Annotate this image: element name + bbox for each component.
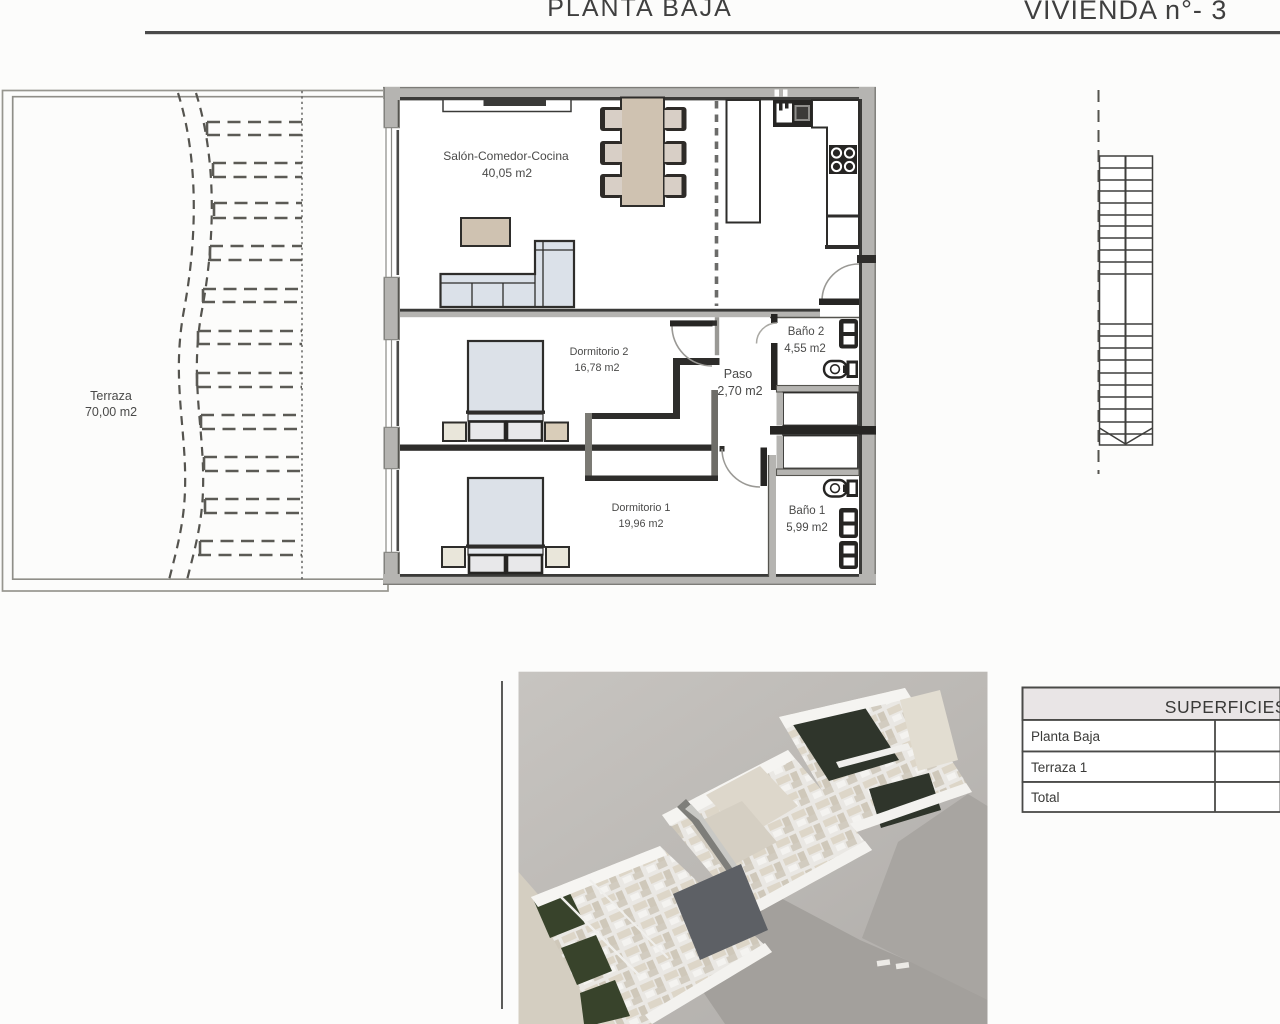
svg-text:Planta Baja: Planta Baja <box>1031 729 1101 744</box>
svg-text:Total: Total <box>1031 790 1060 805</box>
svg-text:Dormitorio 1: Dormitorio 1 <box>612 502 671 514</box>
svg-text:5,99 m2: 5,99 m2 <box>786 522 828 534</box>
svg-text:Dormitorio 2: Dormitorio 2 <box>570 346 629 358</box>
svg-text:Terraza 1: Terraza 1 <box>1031 760 1087 775</box>
svg-text:SUPERFICIES: SUPERFICIES <box>1165 697 1280 717</box>
svg-text:Baño 1: Baño 1 <box>789 505 825 517</box>
svg-text:40,05 m2: 40,05 m2 <box>482 166 532 180</box>
svg-text:Baño 2: Baño 2 <box>788 326 824 338</box>
svg-text:4,55 m2: 4,55 m2 <box>784 343 826 355</box>
svg-text:16,78 m2: 16,78 m2 <box>574 362 619 374</box>
svg-text:70,00 m2: 70,00 m2 <box>85 405 137 419</box>
svg-text:Paso: Paso <box>724 367 753 381</box>
svg-text:PLANTA BAJA: PLANTA BAJA <box>547 0 733 22</box>
svg-text:Salón-Comedor-Cocina: Salón-Comedor-Cocina <box>443 149 569 163</box>
svg-text:Terraza: Terraza <box>90 389 132 403</box>
svg-text:19,96 m2: 19,96 m2 <box>618 518 663 530</box>
svg-text:2,70 m2: 2,70 m2 <box>717 384 762 398</box>
svg-text:VIVIENDA n°- 3: VIVIENDA n°- 3 <box>1024 0 1227 25</box>
